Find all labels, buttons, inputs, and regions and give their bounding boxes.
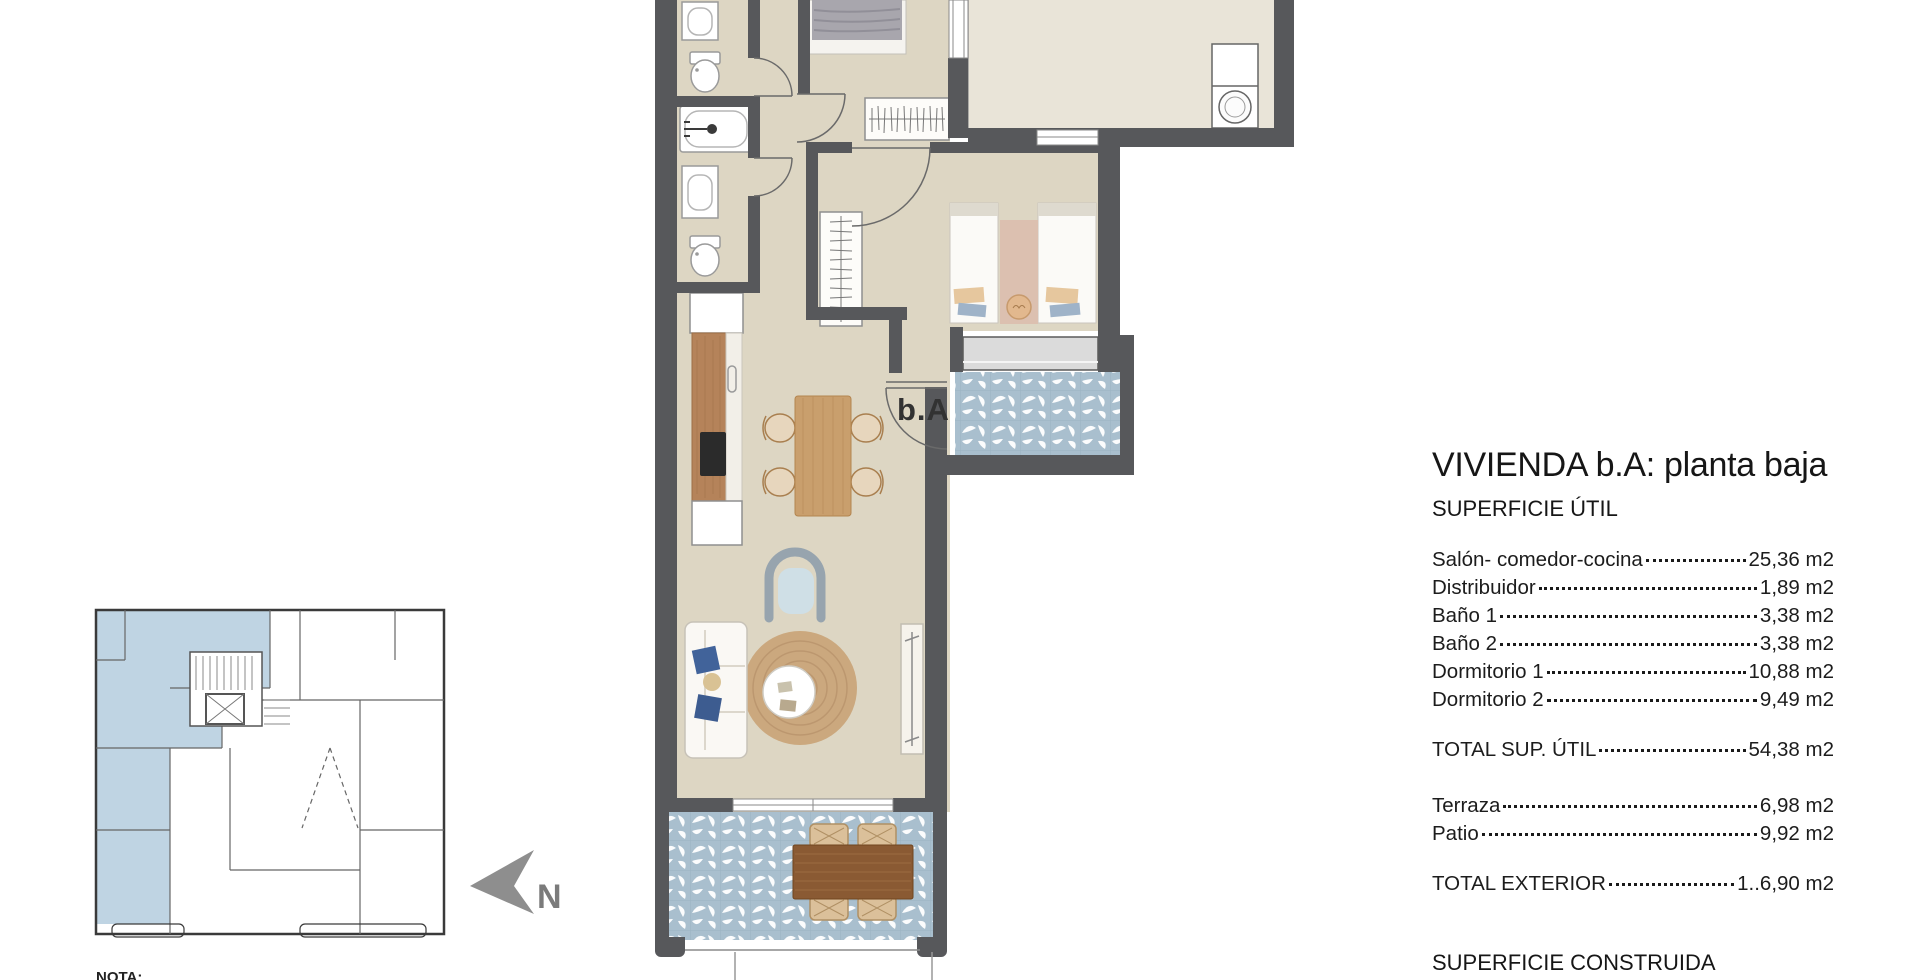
row-value: 54,38 m2 (1749, 736, 1834, 764)
row-value: 25,36 m2 (1749, 546, 1834, 574)
outdoor-table (793, 845, 913, 899)
page-title: VIVIENDA b.A: planta baja (1432, 444, 1834, 486)
section-heading-util: SUPERFICIE ÚTIL (1432, 496, 1834, 522)
exterior-rows: Terraza 6,98 m2 Patio 9,92 m2 (1432, 792, 1834, 848)
row-label: Salón- comedor-cocina (1432, 546, 1643, 574)
unit-label: b.A (897, 392, 950, 428)
dot-leader (1547, 671, 1746, 674)
dot-leader (1500, 643, 1757, 646)
row-value: 9,92 m2 (1760, 820, 1834, 848)
row-label: Dormitorio 2 (1432, 686, 1544, 714)
dot-leader (1539, 587, 1757, 590)
util-rows: Salón- comedor-cocina 25,36 m2 Distribui… (1432, 546, 1834, 714)
row-label: Patio (1432, 820, 1479, 848)
single-bed-1 (950, 203, 998, 323)
main-floor-plan (655, 0, 1294, 980)
row-value: 1..6,90 m2 (1737, 870, 1834, 898)
cooktop (700, 432, 726, 476)
dot-leader (1503, 805, 1757, 808)
dot-leader (1482, 833, 1757, 836)
floor-terrace-right (955, 372, 1120, 455)
single-bed-2 (1038, 203, 1096, 323)
pouf (1007, 295, 1031, 319)
row-label: TOTAL EXTERIOR (1432, 870, 1606, 898)
wardrobe-bedroom-1 (865, 98, 949, 140)
row-value: 3,38 m2 (1760, 602, 1834, 630)
row-value: 6,98 m2 (1760, 792, 1834, 820)
kitchen-counter (690, 293, 743, 545)
media-cabinet (901, 624, 923, 754)
window-bedroom-1 (949, 0, 968, 58)
row-label: Dormitorio 1 (1432, 658, 1544, 686)
row-value: 9,49 m2 (1760, 686, 1834, 714)
table-row: Patio 9,92 m2 (1432, 820, 1834, 848)
row-value: 1,89 m2 (1760, 574, 1834, 602)
window-patio (1037, 130, 1098, 145)
sink-bathroom-1 (682, 2, 718, 40)
bathtub (680, 106, 752, 152)
row-label: Baño 2 (1432, 630, 1497, 658)
row-value: 3,38 m2 (1760, 630, 1834, 658)
key-plan (96, 610, 444, 937)
row-label: Terraza (1432, 792, 1500, 820)
window-sill-terrace-right (963, 337, 1098, 370)
stair-core (190, 652, 290, 726)
note-label: NOTA: (96, 969, 142, 980)
dot-leader (1609, 883, 1734, 886)
table-row: Salón- comedor-cocina 25,36 m2 (1432, 546, 1834, 574)
coffee-table (763, 666, 815, 718)
table-row: Dormitorio 1 10,88 m2 (1432, 658, 1834, 686)
row-label: Baño 1 (1432, 602, 1497, 630)
dot-leader (1646, 559, 1746, 562)
washing-machine (1212, 44, 1258, 128)
toilet-bathroom-2 (690, 236, 720, 276)
row-value: 10,88 m2 (1749, 658, 1834, 686)
table-row: Baño 2 3,38 m2 (1432, 630, 1834, 658)
dot-leader (1500, 615, 1757, 618)
north-label: N (537, 878, 562, 917)
north-arrow (470, 850, 534, 914)
total-exterior-row: TOTAL EXTERIOR 1..6,90 m2 (1432, 870, 1834, 898)
table-row: Terraza 6,98 m2 (1432, 792, 1834, 820)
section-heading-constructed: SUPERFICIE CONSTRUIDA (1432, 950, 1834, 976)
toilet-bathroom-1 (690, 52, 720, 92)
sink-bathroom-2 (682, 166, 718, 218)
dot-leader (1599, 749, 1745, 752)
row-label: TOTAL SUP. ÚTIL (1432, 736, 1596, 764)
sliding-door-terrace (733, 799, 893, 811)
dot-leader (1547, 699, 1757, 702)
plan-sheet: b.A N NOTA: VIVIENDA b.A: planta baja SU… (0, 0, 1920, 980)
north-arrow-icon (470, 850, 534, 914)
table-row: Distribuidor 1,89 m2 (1432, 574, 1834, 602)
dining-table (795, 396, 851, 516)
table-row: Dormitorio 2 9,49 m2 (1432, 686, 1834, 714)
table-row: Baño 1 3,38 m2 (1432, 602, 1834, 630)
surface-table: VIVIENDA b.A: planta baja SUPERFICIE ÚTI… (1432, 444, 1834, 976)
sofa (685, 622, 747, 758)
total-util-row: TOTAL SUP. ÚTIL 54,38 m2 (1432, 736, 1834, 764)
row-label: Distribuidor (1432, 574, 1536, 602)
double-bed (808, 0, 906, 54)
